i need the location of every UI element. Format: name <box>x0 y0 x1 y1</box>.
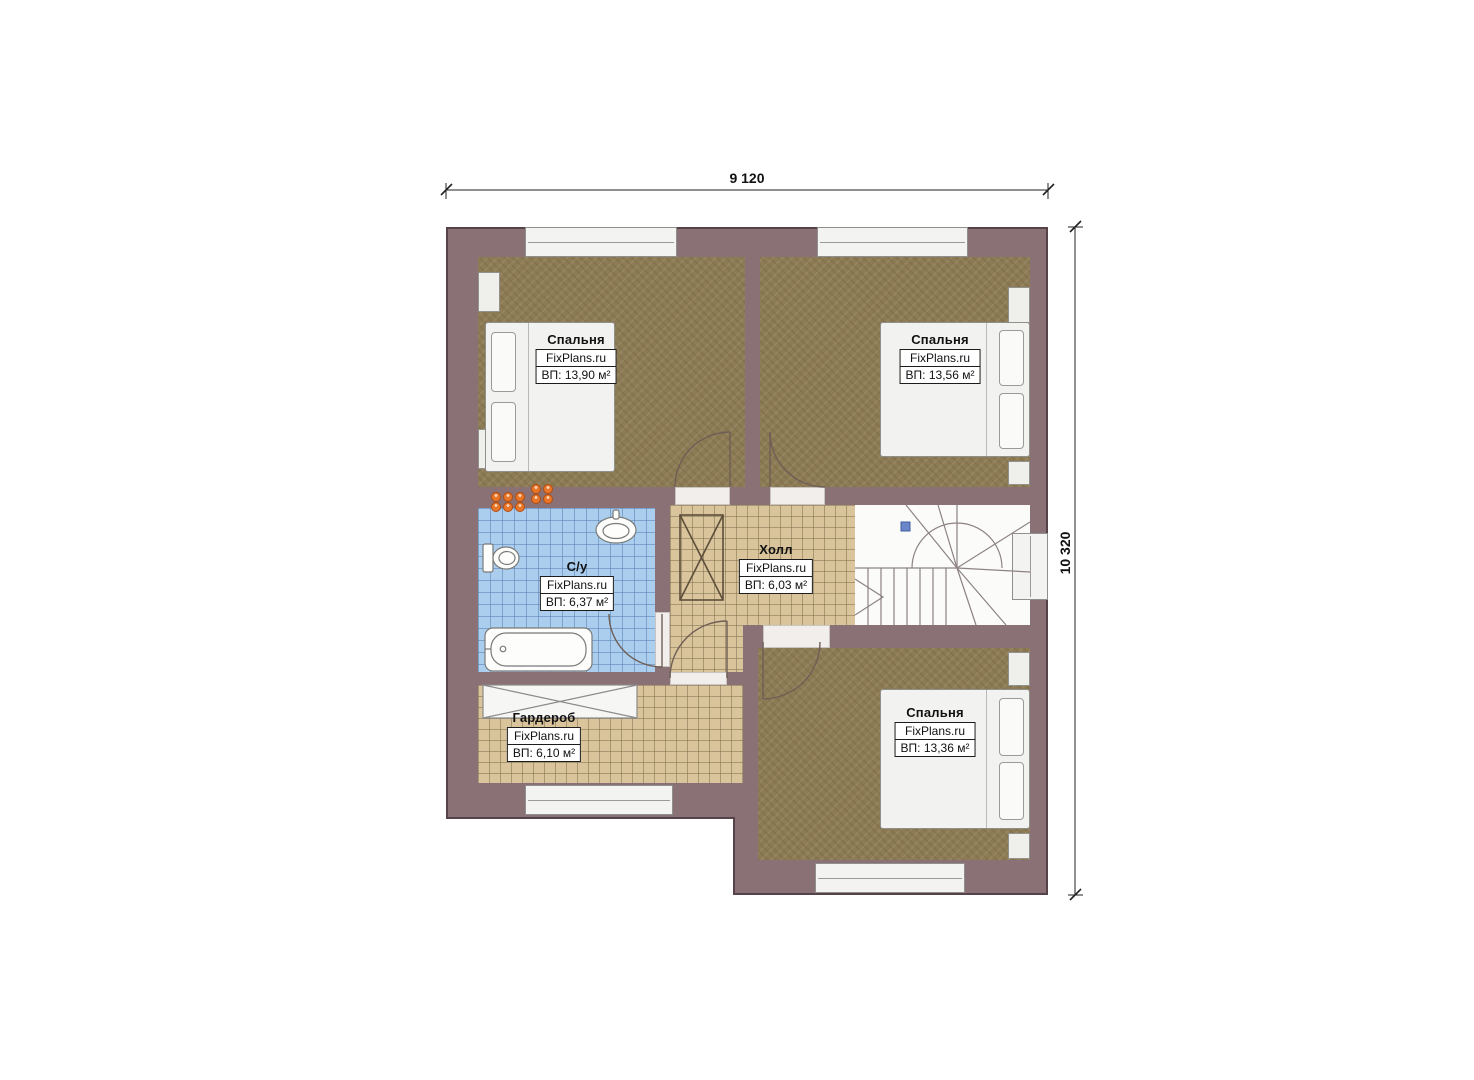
pillow <box>999 698 1024 756</box>
pillow <box>999 762 1024 820</box>
page: { "plan_title": "Floor plan (2nd floor)"… <box>0 0 1474 1080</box>
pillow <box>491 402 516 462</box>
floor-corridor <box>670 625 743 672</box>
room-brand: FixPlans.ru <box>540 576 614 594</box>
pillow <box>491 332 516 392</box>
room-brand: FixPlans.ru <box>739 559 813 577</box>
nightstand <box>1008 461 1030 485</box>
floor-plan: Спальня FixPlans.ru ВП: 13,90 м² Спальня… <box>446 227 1048 895</box>
room-label-bedroom-top-left: Спальня FixPlans.ru ВП: 13,90 м² <box>536 332 617 384</box>
window-top-right <box>817 227 968 257</box>
room-area: ВП: 13,36 м² <box>895 739 976 757</box>
nightstand <box>1008 652 1030 686</box>
room-label-bedroom-bottom-right: Спальня FixPlans.ru ВП: 13,36 м² <box>895 705 976 757</box>
room-brand: FixPlans.ru <box>507 727 581 745</box>
nightstand <box>478 272 500 312</box>
window-right <box>1012 533 1048 600</box>
width-dimension-label: 9 120 <box>446 170 1048 186</box>
window-bottom-left <box>525 785 673 815</box>
window-bottom-right <box>815 863 965 893</box>
room-name: Спальня <box>900 332 981 347</box>
room-area: ВП: 6,37 м² <box>540 593 614 611</box>
room-label-bathroom: С/у FixPlans.ru ВП: 6,37 м² <box>540 559 614 611</box>
pillow <box>999 393 1024 449</box>
room-area: ВП: 6,03 м² <box>739 576 813 594</box>
door-opening-wardrobe <box>670 672 727 685</box>
room-area: ВП: 13,90 м² <box>536 366 617 384</box>
door-opening-bathroom <box>655 612 670 667</box>
room-area: ВП: 13,56 м² <box>900 366 981 384</box>
room-area: ВП: 6,10 м² <box>507 744 581 762</box>
room-brand: FixPlans.ru <box>900 349 981 367</box>
room-brand: FixPlans.ru <box>895 722 976 740</box>
door-opening-bedroom-bottom-right <box>763 625 830 648</box>
height-dimension-label: 10 320 <box>1057 508 1073 598</box>
nightstand <box>1008 287 1030 323</box>
room-name: Гардероб <box>507 710 581 725</box>
door-opening-bedroom-top-right <box>770 487 825 505</box>
room-name: Спальня <box>895 705 976 720</box>
room-brand: FixPlans.ru <box>536 349 617 367</box>
room-name: С/у <box>540 559 614 574</box>
room-name: Спальня <box>536 332 617 347</box>
window-top-left <box>525 227 677 257</box>
room-label-bedroom-top-right: Спальня FixPlans.ru ВП: 13,56 м² <box>900 332 981 384</box>
nightstand <box>1008 833 1030 859</box>
room-name: Холл <box>739 542 813 557</box>
room-label-wardrobe: Гардероб FixPlans.ru ВП: 6,10 м² <box>507 710 581 762</box>
room-label-hall: Холл FixPlans.ru ВП: 6,03 м² <box>739 542 813 594</box>
pillow <box>999 330 1024 386</box>
floor-staircase <box>855 505 1030 625</box>
door-opening-bedroom-top-left <box>675 487 730 505</box>
